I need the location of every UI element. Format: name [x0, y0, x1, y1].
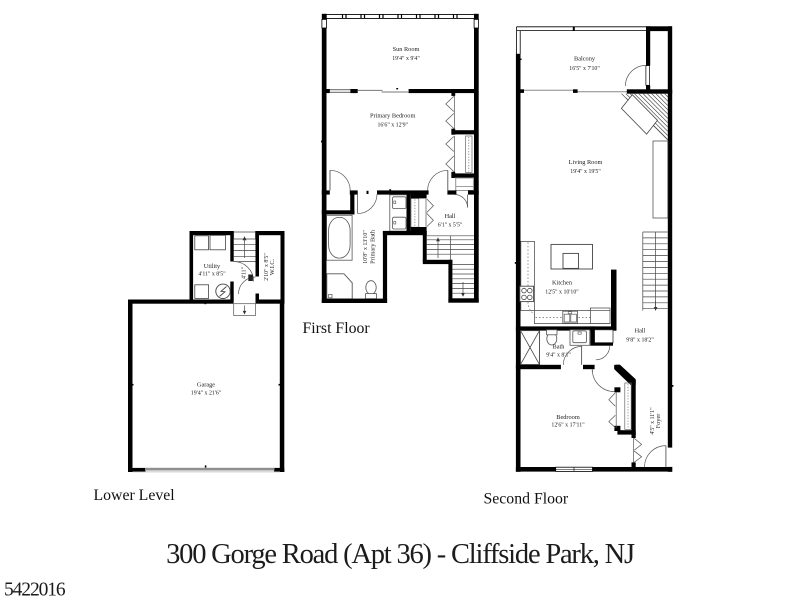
- svg-text:5422016: 5422016: [4, 580, 66, 600]
- svg-text:Second Floor: Second Floor: [484, 491, 569, 508]
- svg-text:12'5" x 10'10": 12'5" x 10'10": [545, 290, 579, 296]
- svg-text:Primary Bedroom: Primary Bedroom: [370, 113, 415, 120]
- svg-text:Hall: Hall: [635, 328, 646, 335]
- svg-text:Garage: Garage: [197, 382, 215, 389]
- svg-text:4'11": 4'11": [242, 266, 248, 279]
- svg-text:First Floor: First Floor: [303, 320, 371, 337]
- svg-text:10'8" x 13'10": 10'8" x 13'10": [363, 230, 369, 264]
- svg-text:Balcony: Balcony: [574, 56, 596, 63]
- svg-text:Sun Room: Sun Room: [393, 46, 420, 53]
- svg-text:9'8" x 18'2": 9'8" x 18'2": [626, 338, 654, 344]
- svg-text:19'4" x 9'4": 19'4" x 9'4": [392, 56, 420, 62]
- svg-text:300 Gorge Road (Apt 36) - Clif: 300 Gorge Road (Apt 36) - Cliffside Park…: [166, 539, 635, 570]
- svg-text:Living Room: Living Room: [569, 159, 603, 166]
- svg-text:16'5" x 7'10": 16'5" x 7'10": [569, 66, 600, 72]
- svg-text:Bath: Bath: [553, 344, 566, 351]
- svg-text:Bedroom: Bedroom: [556, 414, 580, 421]
- svg-text:Lower Level: Lower Level: [94, 487, 176, 504]
- svg-text:19'4" x 19'5": 19'4" x 19'5": [570, 169, 601, 175]
- svg-text:Kitchen: Kitchen: [552, 280, 573, 287]
- svg-text:Utility: Utility: [204, 263, 221, 270]
- svg-text:Primary Bath: Primary Bath: [370, 229, 377, 264]
- svg-text:Hall: Hall: [445, 213, 456, 220]
- svg-text:4'11" x 8'5": 4'11" x 8'5": [198, 272, 226, 278]
- svg-text:W.I.C.: W.I.C.: [269, 258, 276, 275]
- svg-text:Foyer: Foyer: [655, 413, 662, 429]
- svg-text:12'6" x 17'11": 12'6" x 17'11": [551, 423, 585, 429]
- svg-text:19'4" x 21'6": 19'4" x 21'6": [191, 391, 222, 397]
- svg-text:16'6" x 12'9": 16'6" x 12'9": [377, 123, 408, 129]
- svg-text:6'1" x 5'5": 6'1" x 5'5": [438, 223, 463, 229]
